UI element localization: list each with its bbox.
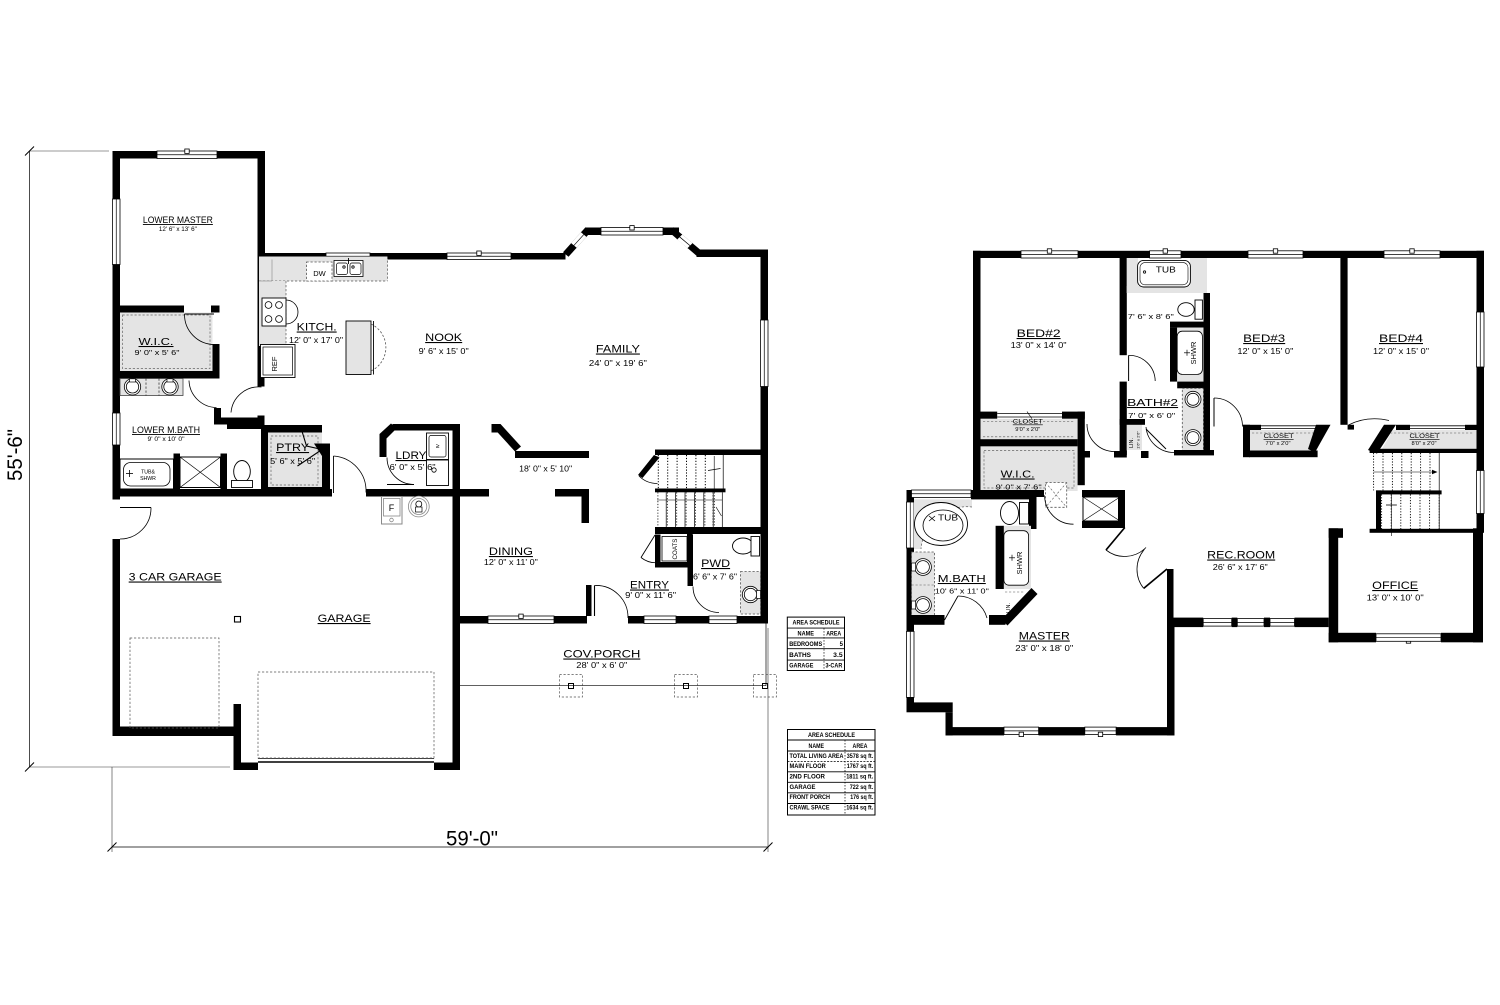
- svg-text:FAMILY: FAMILY: [596, 344, 641, 356]
- svg-text:CRAWL SPACE: CRAWL SPACE: [790, 805, 830, 812]
- svg-text:59'-0": 59'-0": [446, 828, 498, 851]
- svg-text:26' 6" x 17' 6": 26' 6" x 17' 6": [1213, 563, 1268, 572]
- svg-text:F: F: [389, 503, 395, 513]
- svg-text:TOTAL LIVING AREA: TOTAL LIVING AREA: [790, 753, 844, 760]
- svg-text:GARAGE: GARAGE: [789, 664, 813, 670]
- svg-text:23' 0" x 18' 0": 23' 0" x 18' 0": [1015, 644, 1073, 653]
- svg-text:8'0" x 2'0": 8'0" x 2'0": [1412, 441, 1437, 447]
- svg-text:1'6" x 2'6": 1'6" x 2'6": [1136, 431, 1141, 449]
- svg-text:24' 0" x 19' 6": 24' 0" x 19' 6": [589, 359, 647, 368]
- svg-text:M.BATH: M.BATH: [938, 573, 986, 585]
- svg-text:AREA: AREA: [853, 743, 868, 750]
- svg-text:7' 6" x 8' 6": 7' 6" x 8' 6": [1128, 312, 1174, 321]
- svg-text:W.I.C.: W.I.C.: [139, 336, 174, 348]
- svg-text:BEDROOMS: BEDROOMS: [789, 642, 822, 648]
- svg-text:NAME: NAME: [809, 743, 825, 750]
- svg-text:GARAGE: GARAGE: [790, 784, 816, 791]
- svg-text:9' 6" x 15' 0": 9' 6" x 15' 0": [419, 347, 469, 356]
- svg-text:12' 6" x 13' 6": 12' 6" x 13' 6": [159, 227, 197, 233]
- svg-text:NAME: NAME: [798, 631, 815, 637]
- svg-text:7'0" x 2'0": 7'0" x 2'0": [1266, 441, 1291, 447]
- svg-text:DW: DW: [313, 269, 326, 278]
- svg-text:OFFICE: OFFICE: [1372, 580, 1418, 592]
- svg-text:LOWER M.BATH: LOWER M.BATH: [132, 425, 200, 435]
- svg-text:PWD: PWD: [701, 558, 730, 570]
- svg-text:13' 0" x 10' 0": 13' 0" x 10' 0": [1367, 594, 1424, 603]
- svg-text:9' 0" x 11' 6": 9' 0" x 11' 6": [625, 591, 676, 600]
- svg-text:COATS: COATS: [672, 539, 679, 560]
- svg-text:3 CAR GARAGE: 3 CAR GARAGE: [129, 572, 222, 584]
- svg-text:AREA SCHEDULE: AREA SCHEDULE: [808, 732, 855, 739]
- svg-text:CLOSET: CLOSET: [1013, 419, 1043, 426]
- svg-text:KITCH.: KITCH.: [297, 322, 337, 334]
- svg-text:GARAGE: GARAGE: [318, 613, 371, 625]
- svg-text:176 sq ft.: 176 sq ft.: [850, 794, 873, 801]
- svg-text:FRONT PORCH: FRONT PORCH: [790, 794, 831, 801]
- svg-text:TUB&: TUB&: [141, 470, 155, 476]
- svg-text:3-CAR: 3-CAR: [826, 664, 843, 670]
- svg-text:9'0" x 2'0": 9'0" x 2'0": [1015, 427, 1040, 433]
- svg-text:55'-6": 55'-6": [4, 429, 27, 481]
- svg-text:DINING: DINING: [489, 546, 533, 558]
- svg-text:LOWER MASTER: LOWER MASTER: [143, 215, 213, 225]
- svg-text:3.5: 3.5: [833, 653, 843, 659]
- svg-text:1634 sq ft.: 1634 sq ft.: [846, 805, 873, 812]
- svg-text:18' 0" x 5' 10": 18' 0" x 5' 10": [519, 465, 572, 474]
- svg-text:LDRY: LDRY: [396, 450, 428, 462]
- svg-text:28' 0" x 6' 0": 28' 0" x 6' 0": [576, 661, 627, 670]
- svg-text:REC.ROOM: REC.ROOM: [1207, 550, 1275, 562]
- svg-text:NOOK: NOOK: [425, 332, 463, 344]
- svg-text:MASTER: MASTER: [1019, 631, 1070, 643]
- svg-text:PTRY: PTRY: [276, 442, 310, 454]
- svg-text:SHWR: SHWR: [1015, 551, 1024, 574]
- svg-text:5' 6" x 5' 6": 5' 6" x 5' 6": [270, 457, 315, 466]
- svg-text:AREA SCHEDULE: AREA SCHEDULE: [793, 620, 840, 626]
- svg-text:722 sq ft.: 722 sq ft.: [850, 784, 874, 791]
- svg-text:BED#4: BED#4: [1379, 333, 1423, 345]
- svg-text:W.I.C.: W.I.C.: [1001, 469, 1035, 481]
- svg-text:2ND FLOOR: 2ND FLOOR: [790, 774, 826, 781]
- svg-text:CLOSET: CLOSET: [1264, 433, 1294, 440]
- svg-text:12' 0" x 15' 0": 12' 0" x 15' 0": [1237, 347, 1293, 356]
- svg-text:12' 0" x 17' 0": 12' 0" x 17' 0": [289, 336, 343, 345]
- svg-text:CLOSET: CLOSET: [1410, 433, 1440, 440]
- svg-text:BED#2: BED#2: [1017, 328, 1061, 340]
- svg-text:12' 0" x 15' 0": 12' 0" x 15' 0": [1373, 347, 1429, 356]
- svg-text:BATH#2: BATH#2: [1127, 397, 1178, 409]
- svg-text:BATHS: BATHS: [789, 653, 811, 659]
- svg-text:REF: REF: [270, 356, 279, 371]
- svg-text:BED#3: BED#3: [1243, 333, 1285, 345]
- svg-text:TUB: TUB: [1156, 266, 1176, 275]
- svg-text:7' 0" x 6' 0": 7' 0" x 6' 0": [1128, 411, 1175, 420]
- svg-text:10' 6" x 11' 0": 10' 6" x 11' 0": [935, 587, 989, 596]
- svg-text:9' 0" x 5' 6": 9' 0" x 5' 6": [135, 348, 180, 357]
- svg-text:COV.PORCH: COV.PORCH: [563, 649, 640, 661]
- svg-text:6' 6" x 7' 6": 6' 6" x 7' 6": [693, 573, 737, 582]
- svg-text:LIN.: LIN.: [1129, 437, 1135, 448]
- svg-text:TUB: TUB: [938, 514, 958, 523]
- svg-text:≥: ≥: [436, 443, 440, 450]
- svg-text:AREA: AREA: [826, 631, 842, 637]
- svg-text:ENTRY: ENTRY: [630, 580, 670, 592]
- svg-text:12' 0" x 11' 0": 12' 0" x 11' 0": [484, 558, 538, 567]
- svg-text:9' 0" x 10' 0": 9' 0" x 10' 0": [148, 437, 185, 443]
- svg-text:1811 sq ft.: 1811 sq ft.: [846, 774, 873, 781]
- svg-text:3578 sq ft.: 3578 sq ft.: [847, 753, 874, 760]
- svg-text:MAIN FLOOR: MAIN FLOOR: [790, 763, 827, 770]
- svg-text:SHWR: SHWR: [1189, 341, 1198, 364]
- svg-text:13' 0" x 14' 0": 13' 0" x 14' 0": [1011, 341, 1067, 350]
- svg-text:1767 sq ft.: 1767 sq ft.: [847, 763, 874, 770]
- svg-text:SHWR: SHWR: [140, 476, 156, 482]
- svg-text:6' 0" x 5' 6": 6' 0" x 5' 6": [390, 463, 436, 472]
